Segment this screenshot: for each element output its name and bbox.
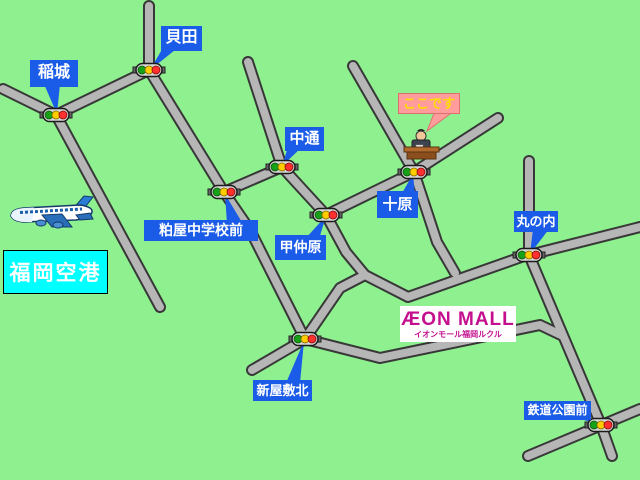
traffic-light-icon-nakadori: [266, 161, 298, 174]
traffic-light-icon-shinyashiki: [289, 333, 321, 346]
label-kasuya-jhs: 粕屋中学校前: [144, 220, 258, 241]
traffic-light-icon-marunouchi: [513, 249, 545, 262]
traffic-light-icon-kasuya: [208, 186, 240, 199]
traffic-light-icon-kaida: [133, 64, 165, 77]
label-shinyashiki-kita: 新屋敷北: [253, 380, 312, 401]
label-konakabaru: 甲仲原: [275, 235, 326, 260]
label-tobaru: 十原: [377, 191, 418, 218]
label-nakadori: 中通: [285, 127, 324, 151]
label-marunouchi: 丸の内: [514, 211, 558, 232]
traffic-light-icon-tobaru: [398, 166, 430, 179]
airplane-icon: [11, 196, 93, 228]
traffic-light-icon-tetsudo: [585, 419, 617, 432]
label-inaki: 稲城: [30, 60, 78, 87]
aeon-mall-subtitle: イオンモール福岡ルクル: [414, 331, 502, 339]
access-map: 稲城 貝田 中通 粕屋中学校前 甲仲原 十原 丸の内 新屋敷北 鉄道公園前 ここ…: [0, 0, 640, 480]
label-kaida: 貝田: [161, 26, 202, 51]
traffic-light-icon-inaki: [40, 109, 72, 122]
aeon-mall-sign: ÆON MALL イオンモール福岡ルクル: [400, 306, 516, 342]
destination-desk-icon: [404, 129, 439, 159]
traffic-light-icon-konakabaru: [310, 209, 342, 222]
airport-sign: 福岡空港: [3, 250, 108, 294]
here-callout: ここです: [398, 93, 460, 114]
aeon-mall-logo-text: ÆON MALL: [401, 310, 515, 329]
label-tetsudo-koen-mae: 鉄道公園前: [524, 401, 591, 420]
